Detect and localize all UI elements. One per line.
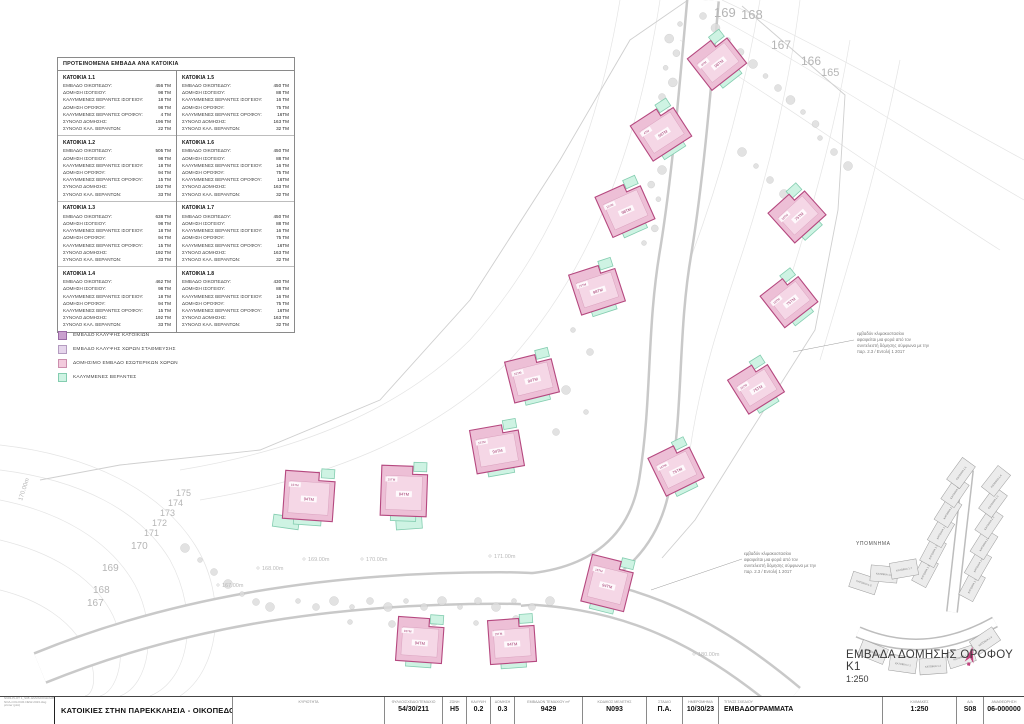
house-area-row-value: 88 ΤΜ [276, 220, 289, 227]
house-area-row-value: 32 ΤΜ [276, 191, 289, 198]
titleblock-field: ΑΝΑΘΕΩΡΗΣΗ06-000000 [983, 697, 1024, 724]
house-area-row-value: 18 ΤΜ [158, 162, 171, 169]
house-area-row-value: 192 ΤΜ [156, 183, 172, 190]
tree-icon [492, 603, 501, 612]
house-area-row-value: 16 ΤΜ [276, 96, 289, 103]
house-area-row-value: 75 ΤΜ [276, 169, 289, 176]
veranda [623, 175, 639, 189]
house-area-row: ΣΥΝΟΛΟ ΚΑΛ. ΒΕΡΑΝΤΩΝ:32 ΤΜ [182, 191, 289, 198]
legend-item: ΚΑΛΥΜΜΕΝΕΣ ΒΕΡΑΝΤΕΣ [58, 373, 178, 382]
house-area-row: ΚΑΛΥΜΜΕΝΕΣ ΒΕΡΑΝΤΕΣ ΟΡΟΦΟΥ:16ΤΜ [182, 176, 289, 183]
titleblock-field: ΚΑΛΥΨΗ0.2 [466, 697, 490, 724]
house-area-row-value: 33 ΤΜ [158, 256, 171, 263]
house-area-row: ΚΑΛΥΜΜΕΝΕΣ ΒΕΡΑΝΤΕΣ ΟΡΟΦΟΥ:15 ΤΜ [63, 176, 171, 183]
house-area-row-label: ΣΥΝΟΛΟ ΚΑΛ. ΒΕΡΑΝΤΩΝ: [182, 191, 240, 198]
spot-level-label: 167.00m [222, 583, 244, 589]
house-area-row-value: 94 ΤΜ [158, 234, 171, 241]
house-area-row: ΔΟΜΗΣΗ ΟΡΟΦΟΥ:94 ΤΜ [63, 300, 171, 307]
house-area-row: ΕΜΒΑΔΟ ΟΙΚΟΠΕΔΟΥ:456 ΤΜ [63, 82, 171, 89]
house-footprint: 75ΤΜ16ΤΜ [765, 182, 829, 247]
house-area-row-label: ΣΥΝΟΛΟ ΚΑΛ. ΒΕΡΑΝΤΩΝ: [182, 321, 240, 328]
titleblock-field-label: ΦΥΛΛΟ/ΣΧΕΔΙΟ/ΤΕΜΑΧΙΟ [392, 700, 436, 704]
titleblock-field-value: Η5 [450, 706, 459, 713]
house-area-row: ΣΥΝΟΛΟ ΚΑΛ. ΒΕΡΑΝΤΩΝ:32 ΤΜ [182, 125, 289, 132]
veranda [535, 347, 550, 359]
house-area-row-label: ΣΥΝΟΛΟ ΚΑΛ. ΒΕΡΑΝΤΩΝ: [182, 125, 240, 132]
house-area-row: ΣΥΝΟΛΟ ΔΟΜΗΣΗΣ:163 ΤΜ [182, 249, 289, 256]
house-area-row-label: ΣΥΝΟΛΟ ΔΟΜΗΣΗΣ: [63, 183, 107, 190]
contour-label: 169 [102, 563, 119, 574]
titleblock-field-label: ΚΑΛΥΨΗ [471, 700, 486, 704]
staircase-annotation: εμβαδόν κλιμακοστασίουαφαιρείται μια φορ… [744, 551, 840, 575]
house-area-row: ΣΥΝΟΛΟ ΔΟΜΗΣΗΣ:196 ΤΜ [63, 118, 171, 125]
house-area-row-value: 88 ΤΜ [276, 155, 289, 162]
house-area-row-label: ΣΥΝΟΛΟ ΔΟΜΗΣΗΣ: [182, 183, 226, 190]
house-area-row: ΚΑΛΥΜΜΕΝΕΣ ΒΕΡΑΝΤΕΣ ΟΡΟΦΟΥ:16ΤΜ [182, 307, 289, 314]
house-area-row-label: ΚΑΛΥΜΜΕΝΕΣ ΒΕΡΑΝΤΕΣ ΟΡΟΦΟΥ: [63, 176, 143, 183]
contour-label: 171 [144, 528, 159, 538]
house-subarea-label: 15ΤΜ [495, 632, 503, 637]
house-footprint: 75ΤΜ16ΤΜ [758, 267, 821, 331]
staircase-annotation: εμβαδόν κλιμακοστασίουαφαιρείται μια φορ… [857, 331, 953, 355]
house-area-row-value: 192 ΤΜ [156, 249, 172, 256]
contour-label: 165 [821, 67, 839, 79]
contour-label: 166 [801, 54, 821, 68]
house-area-row-value: 16ΤΜ [277, 307, 289, 314]
veranda [430, 615, 444, 625]
stamp-line: printer (plot) [4, 704, 20, 708]
tree-icon [389, 621, 396, 628]
house-area-row-value: 163 ΤΜ [274, 314, 290, 321]
house-area-row-label: ΕΜΒΑΔΟ ΟΙΚΟΠΕΔΟΥ: [63, 82, 112, 89]
house-area-row-label: ΔΟΜΗΣΗ ΟΡΟΦΟΥ: [182, 169, 225, 176]
tree-icon [642, 241, 647, 246]
titleblock-field: ΕΜΒΑΔΟΝ ΤΕΜΑΧΙΟΥ m²9429 [514, 697, 582, 724]
house-area-row: ΣΥΝΟΛΟ ΚΑΛ. ΒΕΡΑΝΤΩΝ:33 ΤΜ [63, 191, 171, 198]
veranda [519, 614, 533, 624]
house-area-row-label: ΕΜΒΑΔΟ ΟΙΚΟΠΕΔΟΥ: [182, 147, 231, 154]
house-area-row-label: ΣΥΝΟΛΟ ΚΑΛ. ΒΕΡΑΝΤΩΝ: [63, 321, 121, 328]
titleblock-field-value: ΕΜΒΑΔΟΓΡΑΜΜΑΤΑ [719, 706, 793, 713]
house-area-block-name: ΚΑΤΟΙΚΙΑ 1.6 [182, 138, 289, 147]
tree-icon [587, 349, 594, 356]
house-area-row: ΕΜΒΑΔΟ ΟΙΚΟΠΕΔΟΥ:450 ΤΜ [182, 82, 289, 89]
plot-stamp: N993-PLOT 1_S08 -EMVADOGRAMMATANOA-COLOU… [0, 697, 55, 724]
house-area-row-label: ΚΑΛΥΜΜΕΝΕΣ ΒΕΡΑΝΤΕΣ ΟΡΟΦΟΥ: [182, 242, 262, 249]
house-area-row-value: 15 ΤΜ [158, 176, 171, 183]
house-area-row-value: 15 ΤΜ [158, 307, 171, 314]
house-area-row-value: 16ΤΜ [277, 176, 289, 183]
house-footprint: 94ΤΜ15ΤΜ [395, 612, 445, 668]
tree-icon [404, 599, 409, 604]
house-area-row-label: ΚΑΛΥΜΜΕΝΕΣ ΒΕΡΑΝΤΕΣ ΙΣΟΓΕΙΟΥ: [63, 162, 143, 169]
house-area-row: ΔΟΜΗΣΗ ΙΣΟΓΕΙΟΥ:98 ΤΜ [63, 89, 171, 96]
house-area-row: ΔΟΜΗΣΗ ΟΡΟΦΟΥ:98 ΤΜ [63, 104, 171, 111]
tree-icon [749, 60, 758, 69]
house-area-row-label: ΔΟΜΗΣΗ ΟΡΟΦΟΥ: [63, 104, 106, 111]
house-area-row-label: ΔΟΜΗΣΗ ΟΡΟΦΟΥ: [182, 104, 225, 111]
house-area-row-value: 18 ΤΜ [158, 293, 171, 300]
house-area-row-value: 192 ΤΜ [156, 314, 172, 321]
tree-icon [651, 225, 658, 232]
house-area-row-value: 33 ΤΜ [158, 191, 171, 198]
house-area-row: ΚΑΛΥΜΜΕΝΕΣ ΒΕΡΑΝΤΕΣ ΟΡΟΦΟΥ:16ΤΜ [182, 242, 289, 249]
house-area-block-name: ΚΑΤΟΙΚΙΑ 1.4 [63, 269, 171, 278]
annotation-line: παρ. 2.3 / Εντολή 1 2017 [857, 349, 953, 355]
tree-icon [663, 65, 668, 70]
house-area-row-label: ΣΥΝΟΛΟ ΔΟΜΗΣΗΣ: [63, 314, 107, 321]
house-area-row-value: 98 ΤΜ [158, 155, 171, 162]
legend-swatch-icon [58, 359, 67, 368]
tree-icon [562, 386, 571, 395]
titleblock-field: ΚΩΔΙΚΟΣ ΜΕΛΕΤΗΣΝ093 [582, 697, 646, 724]
house-area-row-label: ΕΜΒΑΔΟ ΟΙΚΟΠΕΔΟΥ: [182, 278, 231, 285]
house-area-row-label: ΕΜΒΑΔΟ ΟΙΚΟΠΕΔΟΥ: [63, 213, 112, 220]
tree-icon [767, 177, 774, 184]
contour-label: 168 [93, 585, 110, 596]
house-area-row: ΚΑΛΥΜΜΕΝΕΣ ΒΕΡΑΝΤΕΣ ΙΣΟΓΕΙΟΥ:18 ΤΜ [63, 162, 171, 169]
house-area-row: ΣΥΝΟΛΟ ΔΟΜΗΣΗΣ:192 ΤΜ [63, 249, 171, 256]
house-area-row: ΔΟΜΗΣΗ ΙΣΟΓΕΙΟΥ:98 ΤΜ [63, 155, 171, 162]
contour-label: 173 [160, 508, 175, 518]
house-area-row: ΣΥΝΟΛΟ ΔΟΜΗΣΗΣ:163 ΤΜ [182, 118, 289, 125]
house-area-row-label: ΚΑΛΥΜΜΕΝΕΣ ΒΕΡΑΝΤΕΣ ΙΣΟΓΕΙΟΥ: [63, 293, 143, 300]
areas-table-col-right: ΚΑΤΟΙΚΙΑ 1.5ΕΜΒΑΔΟ ΟΙΚΟΠΕΔΟΥ:450 ΤΜΔΟΜΗΣ… [176, 71, 294, 332]
house-area-row-label: ΣΥΝΟΛΟ ΔΟΜΗΣΗΣ: [182, 118, 226, 125]
house-footprint: 94ΤΜ15ΤΜ [380, 461, 428, 522]
tree-icon [763, 74, 768, 79]
house-area-row-value: 18 ΤΜ [158, 96, 171, 103]
keymap-lot: ΚΑΤΟΙΚΙΑ 1.4 [981, 465, 1010, 496]
tree-icon [571, 328, 576, 333]
tree-icon [665, 34, 674, 43]
house-area-row-value: 4 ΤΜ [161, 111, 171, 118]
house-area-row-label: ΚΑΛΥΜΜΕΝΕΣ ΒΕΡΑΝΤΕΣ ΟΡΟΦΟΥ: [182, 307, 262, 314]
tree-icon [313, 604, 320, 611]
house-area-row-value: 16ΤΜ [277, 111, 289, 118]
house-area-row-label: ΔΟΜΗΣΗ ΙΣΟΓΕΙΟΥ: [63, 89, 106, 96]
house-footprint: 98ΤΜ15ΤΜ [593, 175, 657, 242]
tree-icon [801, 110, 806, 115]
house-footprint: 94ΤΜ15ΤΜ [504, 347, 561, 408]
house-area-row: ΚΑΛΥΜΜΕΝΕΣ ΒΕΡΑΝΤΕΣ ΙΣΟΓΕΙΟΥ:16 ΤΜ [182, 162, 289, 169]
house-area-row-label: ΣΥΝΟΛΟ ΚΑΛ. ΒΕΡΑΝΤΩΝ: [182, 256, 240, 263]
house-area-row-value: 18 ΤΜ [158, 227, 171, 234]
house-area-row-value: 33 ΤΜ [158, 321, 171, 328]
house-area-row-label: ΔΟΜΗΣΗ ΙΣΟΓΕΙΟΥ: [63, 285, 106, 292]
house-area-block-name: ΚΑΤΟΙΚΙΑ 1.7 [182, 204, 289, 213]
house-area-row: ΚΑΛΥΜΜΕΝΕΣ ΒΕΡΑΝΤΕΣ ΙΣΟΓΕΙΟΥ:16 ΤΜ [182, 293, 289, 300]
tree-icon [529, 604, 536, 611]
house-area-row-value: 456 ΤΜ [156, 82, 172, 89]
tree-icon [700, 13, 707, 20]
house-area-label: 94ΤΜ [507, 641, 518, 647]
house-area-row-label: ΚΑΛΥΜΜΕΝΕΣ ΒΕΡΑΝΤΕΣ ΙΣΟΓΕΙΟΥ: [63, 227, 143, 234]
tree-icon [668, 78, 677, 87]
tree-icon [253, 599, 260, 606]
tree-icon [754, 164, 759, 169]
house-area-row: ΕΜΒΑΔΟ ΟΙΚΟΠΕΔΟΥ:450 ΤΜ [182, 147, 289, 154]
project-title-cell: ΚΑΤΟΙΚΙΕΣ ΣΤΗΝ ΠΑΡΕΚΚΛΗΣΙΑ - ΟΙΚΟΠΕΔΟ 1 [55, 697, 232, 724]
contour-label: 167 [771, 38, 791, 52]
titleblock-field: ΦΥΛΛΟ/ΣΧΕΔΙΟ/ΤΕΜΑΧΙΟ54/30/211 [384, 697, 442, 724]
house-area-row-value: 505 ΤΜ [156, 147, 172, 154]
areas-table: ΠΡΟΤΕΙΝΟΜΕΝΑ ΕΜΒΑΔΑ ΑΝΑ ΚΑΤΟΙΚΙΑ ΚΑΤΟΙΚΙ… [57, 57, 295, 333]
house-area-row: ΣΥΝΟΛΟ ΔΟΜΗΣΗΣ:192 ΤΜ [63, 183, 171, 190]
tree-icon [658, 166, 667, 175]
titleblock-field: ΚΥΡΙΟΤΗΤΑ [232, 697, 384, 724]
house-area-block-name: ΚΑΤΟΙΚΙΑ 1.3 [63, 204, 171, 213]
tree-icon [546, 597, 555, 606]
titleblock-field-value: Π.Α. [658, 706, 672, 713]
house-area-row: ΔΟΜΗΣΗ ΙΣΟΓΕΙΟΥ:98 ΤΜ [63, 285, 171, 292]
tree-icon [438, 597, 447, 606]
house-subarea-label: 15ΤΜ [387, 477, 395, 481]
house-area-row-label: ΕΜΒΑΔΟ ΟΙΚΟΠΕΔΟΥ: [182, 213, 231, 220]
house-area-row: ΣΥΝΟΛΟ ΚΑΛ. ΒΕΡΑΝΤΩΝ:33 ΤΜ [63, 256, 171, 263]
legend-item-label: ΕΜΒΑΔΟ ΚΑΛΥΨΗΣ ΧΩΡΩΝ ΣΤΑΘΜΕΥΣΗΣ [73, 347, 176, 352]
house-area-block: ΚΑΤΟΙΚΙΑ 1.8ΕΜΒΑΔΟ ΟΙΚΟΠΕΔΟΥ:430 ΤΜΔΟΜΗΣ… [177, 266, 294, 331]
contour-label: 170 [131, 541, 148, 552]
house-area-row-value: 430 ΤΜ [274, 278, 290, 285]
titleblock-field-label: ΚΩΔΙΚΟΣ ΜΕΛΕΤΗΣ [598, 700, 632, 704]
house-area-row: ΣΥΝΟΛΟ ΚΑΛ. ΒΕΡΑΝΤΩΝ:32 ΤΜ [182, 321, 289, 328]
titleblock-field-value: 1:250 [911, 706, 929, 713]
tree-icon [475, 598, 482, 605]
tree-icon [367, 598, 374, 605]
house-area-row: ΚΑΛΥΜΜΕΝΕΣ ΒΕΡΑΝΤΕΣ ΟΡΟΦΟΥ:4 ΤΜ [63, 111, 171, 118]
house-area-row: ΚΑΛΥΜΜΕΝΕΣ ΒΕΡΑΝΤΕΣ ΟΡΟΦΟΥ:15 ΤΜ [63, 307, 171, 314]
tree-icon [512, 599, 517, 604]
house-area-row: ΣΥΝΟΛΟ ΔΟΜΗΣΗΣ:163 ΤΜ [182, 183, 289, 190]
house-area-row-label: ΚΑΛΥΜΜΕΝΕΣ ΒΕΡΑΝΤΕΣ ΟΡΟΦΟΥ: [63, 307, 143, 314]
house-area-row: ΚΑΛΥΜΜΕΝΕΣ ΒΕΡΑΝΤΕΣ ΙΣΟΓΕΙΟΥ:16 ΤΜ [182, 96, 289, 103]
house-area-row-value: 98 ΤΜ [158, 89, 171, 96]
contour-label: 168 [741, 7, 763, 22]
titleblock-field-label: ΣΤΑΔΙΟ [658, 700, 671, 704]
tree-icon [266, 603, 275, 612]
keymap-label: ΥΠΟΜΝΗΜΑ [856, 541, 891, 547]
titleblock-field: ΔΟΜΗΣΗ0.3 [490, 697, 514, 724]
tree-icon [421, 604, 428, 611]
house-area-row-value: 450 ΤΜ [274, 147, 290, 154]
areas-table-title: ΠΡΟΤΕΙΝΟΜΕΝΑ ΕΜΒΑΔΑ ΑΝΑ ΚΑΤΟΙΚΙΑ [58, 58, 294, 71]
house-area-block-name: ΚΑΤΟΙΚΙΑ 1.5 [182, 73, 289, 82]
house-area-label: 94ΤΜ [399, 491, 409, 496]
house-area-row-label: ΣΥΝΟΛΟ ΚΑΛ. ΒΕΡΑΝΤΩΝ: [63, 191, 121, 198]
house-area-row-label: ΕΜΒΑΔΟ ΟΙΚΟΠΕΔΟΥ: [182, 82, 231, 89]
tree-icon [330, 597, 339, 606]
drawing-scale: 1:250 [846, 674, 1024, 684]
house-area-row-value: 163 ΤΜ [274, 249, 290, 256]
titleblock-field-label: ΗΜΕΡΟΜΗΝΙΑ [688, 700, 713, 704]
house-area-row-label: ΚΑΛΥΜΜΕΝΕΣ ΒΕΡΑΝΤΕΣ ΙΣΟΓΕΙΟΥ: [182, 227, 262, 234]
house-area-row-value: 88 ΤΜ [276, 285, 289, 292]
house-area-block-name: ΚΑΤΟΙΚΙΑ 1.8 [182, 269, 289, 278]
house-area-row: ΔΟΜΗΣΗ ΙΣΟΓΕΙΟΥ:88 ΤΜ [182, 155, 289, 162]
house-area-row: ΚΑΛΥΜΜΕΝΕΣ ΒΕΡΑΝΤΕΣ ΙΣΟΓΕΙΟΥ:18 ΤΜ [63, 227, 171, 234]
titleblock-field-value: 54/30/211 [398, 706, 429, 713]
house-area-row-label: ΔΟΜΗΣΗ ΙΣΟΓΕΙΟΥ: [63, 155, 106, 162]
tree-icon [181, 544, 190, 553]
titleblock-field: ΤΙΤΛΟΣ ΣΧΕΔΙΟΥΕΜΒΑΔΟΓΡΑΜΜΑΤΑ [718, 697, 882, 724]
legend-swatch-icon [58, 331, 67, 340]
house-area-row: ΔΟΜΗΣΗ ΙΣΟΓΕΙΟΥ:98 ΤΜ [63, 220, 171, 227]
spot-level-label: 168.00m [262, 566, 284, 572]
house-area-block: ΚΑΤΟΙΚΙΑ 1.2ΕΜΒΑΔΟ ΟΙΚΟΠΕΔΟΥ:505 ΤΜΔΟΜΗΣ… [58, 135, 176, 200]
house-area-block: ΚΑΤΟΙΚΙΑ 1.6ΕΜΒΑΔΟ ΟΙΚΟΠΕΔΟΥ:450 ΤΜΔΟΜΗΣ… [177, 135, 294, 200]
veranda [414, 462, 427, 471]
contour-label: 167 [87, 598, 104, 609]
titleblock-field: ΖΩΝΗΗ5 [442, 697, 466, 724]
house-area-row-value: 462 ΤΜ [156, 278, 172, 285]
house-area-row: ΔΟΜΗΣΗ ΟΡΟΦΟΥ:75 ΤΜ [182, 104, 289, 111]
house-area-row-value: 196 ΤΜ [156, 118, 172, 125]
house-area-row: ΔΟΜΗΣΗ ΟΡΟΦΟΥ:75 ΤΜ [182, 234, 289, 241]
titleblock-field-label: ΚΥΡΙΟΤΗΤΑ [298, 700, 318, 704]
tree-icon [240, 592, 245, 597]
titleblock-field-label: ΔΟΜΗΣΗ [495, 700, 511, 704]
titleblock-field: ΚΛΙΜΑΚΕΣ1:250 [882, 697, 956, 724]
house-area-row: ΚΑΛΥΜΜΕΝΕΣ ΒΕΡΑΝΤΕΣ ΟΡΟΦΟΥ:16ΤΜ [182, 111, 289, 118]
contour-label: 170.00m [18, 478, 31, 502]
house-area-block: ΚΑΤΟΙΚΙΑ 1.1ΕΜΒΑΔΟ ΟΙΚΟΠΕΔΟΥ:456 ΤΜΔΟΜΗΣ… [58, 71, 176, 135]
tree-icon [553, 429, 560, 436]
house-area-row-label: ΔΟΜΗΣΗ ΟΡΟΦΟΥ: [63, 169, 106, 176]
house-area-row-label: ΚΑΛΥΜΜΕΝΕΣ ΒΕΡΑΝΤΕΣ ΟΡΟΦΟΥ: [63, 111, 143, 118]
tree-icon [812, 121, 819, 128]
titleblock-field: ΣΤΑΔΙΟΠ.Α. [646, 697, 682, 724]
house-area-row: ΚΑΛΥΜΜΕΝΕΣ ΒΕΡΑΝΤΕΣ ΙΣΟΓΕΙΟΥ:18 ΤΜ [63, 96, 171, 103]
house-area-row: ΔΟΜΗΣΗ ΙΣΟΓΕΙΟΥ:88 ΤΜ [182, 285, 289, 292]
tree-icon [584, 410, 589, 415]
tree-icon [296, 599, 301, 604]
tree-icon [818, 136, 823, 141]
drawing-sheet: 98ΤΜ4ΤΜ98ΤΜ4ΤΜ98ΤΜ15ΤΜ75ΤΜ16ΤΜ98ΤΜ15ΤΜ75… [0, 0, 1024, 724]
house-area-row-value: 32 ΤΜ [276, 125, 289, 132]
legend-swatch-icon [58, 345, 67, 354]
house-area-row-label: ΔΟΜΗΣΗ ΙΣΟΓΕΙΟΥ: [182, 89, 225, 96]
house-area-row: ΕΜΒΑΔΟ ΟΙΚΟΠΕΔΟΥ:450 ΤΜ [182, 213, 289, 220]
house-area-row-value: 94 ΤΜ [158, 169, 171, 176]
titleblock-field-value: 10/30/23 [687, 706, 714, 713]
house-area-row-value: 450 ΤΜ [274, 82, 290, 89]
legend-item: ΕΜΒΑΔΟ ΚΑΛΥΨΗΣ ΚΑΤΟΙΚΙΩΝ [58, 331, 178, 340]
house-area-block-name: ΚΑΤΟΙΚΙΑ 1.2 [63, 138, 171, 147]
areas-table-col-left: ΚΑΤΟΙΚΙΑ 1.1ΕΜΒΑΔΟ ΟΙΚΟΠΕΔΟΥ:456 ΤΜΔΟΜΗΣ… [58, 71, 176, 332]
house-area-row: ΣΥΝΟΛΟ ΚΑΛ. ΒΕΡΑΝΤΩΝ:33 ΤΜ [63, 321, 171, 328]
house-area-row: ΣΥΝΟΛΟ ΔΟΜΗΣΗΣ:163 ΤΜ [182, 314, 289, 321]
house-area-row: ΚΑΛΥΜΜΕΝΕΣ ΒΕΡΑΝΤΕΣ ΙΣΟΓΕΙΟΥ:16 ΤΜ [182, 227, 289, 234]
drawing-title: ΕΜΒΑΔΑ ΔΟΜΗΣΗΣ ΟΡΟΦΟΥ Κ1 [846, 649, 1024, 673]
contour-label: 175 [176, 488, 191, 498]
house-area-row-value: 98 ΤΜ [158, 220, 171, 227]
spot-level-label: 180.00m [698, 652, 720, 658]
house-area-row-value: 163 ΤΜ [274, 183, 290, 190]
house-area-row-value: 16 ΤΜ [276, 293, 289, 300]
tree-icon [831, 149, 838, 156]
titleblock-field-label: ΚΛΙΜΑΚΕΣ [910, 700, 928, 704]
titleblock-field-label: ΕΜΒΑΔΟΝ ΤΕΜΑΧΙΟΥ m² [527, 700, 569, 704]
house-area-row-label: ΕΜΒΑΔΟ ΟΙΚΟΠΕΔΟΥ: [63, 147, 112, 154]
house-area-row-label: ΣΥΝΟΛΟ ΔΟΜΗΣΗΣ: [182, 249, 226, 256]
house-area-row-value: 163 ΤΜ [274, 118, 290, 125]
house-area-row-value: 15 ΤΜ [158, 242, 171, 249]
contour-label: 169 [714, 5, 736, 20]
project-title: ΚΑΤΟΙΚΙΕΣ ΣΤΗΝ ΠΑΡΕΚΚΛΗΣΙΑ - ΟΙΚΟΠΕΔΟ 1 [61, 706, 232, 715]
house-area-row-value: 75 ΤΜ [276, 104, 289, 111]
house-area-row: ΕΜΒΑΔΟ ΟΙΚΟΠΕΔΟΥ:505 ΤΜ [63, 147, 171, 154]
titleblock-field-label: ΖΩΝΗ [449, 700, 459, 704]
house-area-row: ΔΟΜΗΣΗ ΟΡΟΦΟΥ:94 ΤΜ [63, 169, 171, 176]
house-area-row-value: 22 ΤΜ [158, 125, 171, 132]
house-area-row-value: 75 ΤΜ [276, 234, 289, 241]
titleblock-field-label: ΑΝΑΘΕΩΡΗΣΗ [991, 700, 1016, 704]
house-area-row-label: ΚΑΛΥΜΜΕΝΕΣ ΒΕΡΑΝΤΕΣ ΟΡΟΦΟΥ: [63, 242, 143, 249]
house-area-row-label: ΔΟΜΗΣΗ ΟΡΟΦΟΥ: [63, 300, 106, 307]
titleblock-field: ΗΜΕΡΟΜΗΝΙΑ10/30/23 [682, 697, 718, 724]
house-area-row: ΔΟΜΗΣΗ ΟΡΟΦΟΥ:75 ΤΜ [182, 169, 289, 176]
legend-item-label: ΕΜΒΑΔΟ ΚΑΛΥΨΗΣ ΚΑΤΟΙΚΙΩΝ [73, 333, 149, 338]
house-area-row-value: 75 ΤΜ [276, 300, 289, 307]
house-area-row-value: 16 ΤΜ [276, 162, 289, 169]
house-footprint: 75ΤΜ16ΤΜ [725, 355, 787, 419]
tree-icon [678, 22, 683, 27]
house-area-row-label: ΔΟΜΗΣΗ ΙΣΟΓΕΙΟΥ: [182, 220, 225, 227]
tree-icon [384, 603, 393, 612]
tree-icon [775, 85, 782, 92]
house-area-row-value: 16ΤΜ [277, 242, 289, 249]
legend-item: ΔΟΜΗΣΙΜΟ ΕΜΒΑΔΟ ΕΣΩΤΕΡΙΚΩΝ ΧΩΡΩΝ [58, 359, 178, 368]
house-area-row: ΕΜΒΑΔΟ ΟΙΚΟΠΕΔΟΥ:430 ΤΜ [182, 278, 289, 285]
house-area-row-value: 638 ΤΜ [156, 213, 172, 220]
house-area-row: ΔΟΜΗΣΗ ΙΣΟΓΕΙΟΥ:88 ΤΜ [182, 220, 289, 227]
tree-icon [458, 605, 463, 610]
house-area-block-name: ΚΑΤΟΙΚΙΑ 1.1 [63, 73, 171, 82]
house-area-row-label: ΔΟΜΗΣΗ ΙΣΟΓΕΙΟΥ: [63, 220, 106, 227]
tree-icon [738, 148, 747, 157]
tree-icon [648, 181, 655, 188]
legend-item-label: ΔΟΜΗΣΙΜΟ ΕΜΒΑΔΟ ΕΣΩΤΕΡΙΚΩΝ ΧΩΡΩΝ [73, 361, 178, 366]
house-area-row: ΚΑΛΥΜΜΕΝΕΣ ΒΕΡΑΝΤΕΣ ΙΣΟΓΕΙΟΥ:18 ΤΜ [63, 293, 171, 300]
house-area-row: ΕΜΒΑΔΟ ΟΙΚΟΠΕΔΟΥ:462 ΤΜ [63, 278, 171, 285]
tree-icon [348, 620, 353, 625]
house-area-row-label: ΔΟΜΗΣΗ ΟΡΟΦΟΥ: [182, 300, 225, 307]
titleblock: N993-PLOT 1_S08 -EMVADOGRAMMATANOA-COLOU… [0, 696, 1024, 724]
house-area-row-label: ΣΥΝΟΛΟ ΔΟΜΗΣΗΣ: [63, 118, 107, 125]
titleblock-field-label: Α/Α [967, 700, 973, 704]
tree-icon [656, 197, 661, 202]
tree-icon [786, 96, 795, 105]
house-area-block: ΚΑΤΟΙΚΙΑ 1.3ΕΜΒΑΔΟ ΟΙΚΟΠΕΔΟΥ:638 ΤΜΔΟΜΗΣ… [58, 201, 176, 266]
titleblock-field-label: ΤΙΤΛΟΣ ΣΧΕΔΙΟΥ [719, 700, 753, 704]
house-area-row-value: 94 ΤΜ [158, 300, 171, 307]
house-area-row: ΚΑΛΥΜΜΕΝΕΣ ΒΕΡΑΝΤΕΣ ΟΡΟΦΟΥ:15 ΤΜ [63, 242, 171, 249]
annotation-line: παρ. 2.3 / Εντολή 1 2017 [744, 569, 840, 575]
house-area-row-label: ΣΥΝΟΛΟ ΔΟΜΗΣΗΣ: [182, 314, 226, 321]
house-area-row-value: 16 ΤΜ [276, 227, 289, 234]
contour-label: 174 [168, 498, 183, 508]
house-area-row-label: ΔΟΜΗΣΗ ΙΣΟΓΕΙΟΥ: [182, 155, 225, 162]
house-area-row-value: 98 ΤΜ [158, 104, 171, 111]
tree-icon [474, 621, 479, 626]
house-area-row: ΔΟΜΗΣΗ ΟΡΟΦΟΥ:94 ΤΜ [63, 234, 171, 241]
tree-icon [198, 558, 203, 563]
house-subarea-label: 15ΤΜ [404, 629, 412, 634]
house-area-row: ΕΜΒΑΔΟ ΟΙΚΟΠΕΔΟΥ:638 ΤΜ [63, 213, 171, 220]
house-area-row-label: ΣΥΝΟΛΟ ΚΑΛ. ΒΕΡΑΝΤΩΝ: [63, 125, 121, 132]
house-area-row-label: ΣΥΝΟΛΟ ΔΟΜΗΣΗΣ: [63, 249, 107, 256]
